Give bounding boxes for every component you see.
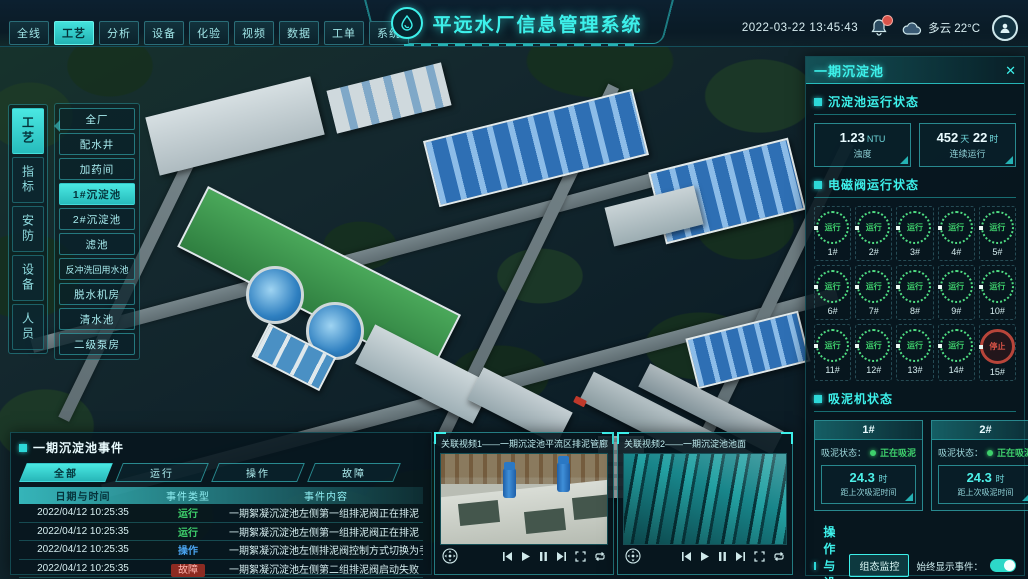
close-icon[interactable]: ✕ [1005,64,1016,77]
weather-text: 多云 22°C [928,20,980,36]
table-row[interactable]: 2022/04/12 10:25:35 运行 一期絮凝沉淀池左侧第一组排泥阀正在… [19,504,423,523]
valve-gauge[interactable]: 运行12# [855,324,892,381]
video-title: 关联视频1——一期沉淀池平流区排泥管廊 [435,433,613,453]
event-tab-running[interactable]: 运行 [115,463,209,482]
status-dot [987,450,993,456]
header-bar: 全线 工艺 分析 设备 化验 视频 数据 工单 系统 平远水厂信息管理系统 20… [0,0,1028,47]
header-right: 2022-03-22 13:45:43 多云 22°C [742,15,1018,41]
skip-back-icon[interactable] [502,551,513,562]
section-header-running: 沉淀池运行状态 [814,93,1016,115]
valve-gauge[interactable]: 运行10# [979,265,1016,320]
nav-tab-analysis[interactable]: 分析 [99,21,139,45]
menu-item-clear-water-pool[interactable]: 清水池 [59,308,135,330]
events-panel: 一期沉淀池事件 全部 运行 操作 故障 日期与时间 事件类型 事件内容 2022… [10,432,432,575]
video-title: 关联视频2——一期沉淀池池面 [618,433,792,453]
weather: 多云 22°C [902,20,980,36]
left-category-tabs: 工艺 指标 安防 设备 人员 [8,104,48,354]
video-controls [435,545,613,567]
valve-gauge[interactable]: 停止15# [979,324,1016,381]
pause-icon[interactable] [718,551,727,562]
nav-tab-video[interactable]: 视频 [234,21,274,45]
table-row[interactable]: 2022/04/12 10:25:35 故障 一期絮凝沉淀池左侧第二组排泥阀启动… [19,560,423,579]
turbidity-stat: 1.23NTU 浊度 [814,123,911,167]
alert-badge [882,15,893,26]
panel-title: 一期沉淀池 [814,61,884,80]
running-stats: 1.23NTU 浊度 452天 22时 连续运行 [814,123,1016,167]
video-still [624,454,786,544]
status-dot [870,450,876,456]
scraper-card-2: 2# 吸泥状态：正在吸泥 24.3 时 距上次吸泥时间 [931,420,1028,511]
title-underline [404,44,634,46]
linked-video-panel-1: 关联视频1——一期沉淀池平流区排泥管廊 [434,432,614,575]
panel-titlebar: 一期沉淀池 ✕ [806,57,1024,84]
video-feed[interactable] [440,453,608,545]
page-title: 平远水厂信息管理系统 [432,10,642,37]
operations-settings-row: 操作与设置 组态监控 始终显示事件： [814,523,1016,579]
nav-tab-workorder[interactable]: 工单 [324,21,364,45]
building [145,76,324,175]
section-header-valves: 电磁阀运行状态 [814,176,1016,198]
menu-item-sedimentation-1[interactable]: 1#沉淀池 [59,183,135,205]
tab-process[interactable]: 工艺 [12,108,44,154]
nav-tab-lab[interactable]: 化验 [189,21,229,45]
valve-gauge[interactable]: 运行5# [979,206,1016,261]
event-tab-fault[interactable]: 故障 [307,463,401,482]
circular-pool [246,266,304,324]
play-icon[interactable] [521,551,531,562]
nav-tab-equipment[interactable]: 设备 [144,21,184,45]
valve-gauge[interactable]: 运行11# [814,324,851,381]
linked-video-panel-2: 关联视频2——一期沉淀池池面 [617,432,793,575]
fullscreen-icon[interactable] [754,551,765,562]
cloud-icon [902,21,922,35]
skip-back-icon[interactable] [681,551,692,562]
event-filter-tabs: 全部 运行 操作 故障 [23,463,421,482]
menu-item-backwash-pool[interactable]: 反冲洗回用水池 [59,258,135,280]
user-avatar[interactable] [992,15,1018,41]
building [326,62,451,133]
menu-item-sedimentation-2[interactable]: 2#沉淀池 [59,208,135,230]
play-icon[interactable] [700,551,710,562]
scraper-card-1: 1# 吸泥状态：正在吸泥 24.3 时 距上次吸泥时间 [814,420,923,511]
table-row[interactable]: 2022/04/12 10:25:35 运行 一期絮凝沉淀池左侧第一组排泥阀正在… [19,523,423,542]
skip-forward-icon[interactable] [735,551,746,562]
video-still [441,454,607,544]
valve-gauge[interactable]: 运行4# [938,206,975,261]
tab-personnel[interactable]: 人员 [12,304,44,350]
uptime-stat: 452天 22时 连续运行 [919,123,1016,167]
menu-item-secondary-pump[interactable]: 二级泵房 [59,333,135,355]
section-bullet [814,562,816,570]
scraper-timer: 24.3 时 距上次吸泥时间 [938,465,1028,504]
scada-monitor-button[interactable]: 组态监控 [849,554,909,577]
menu-item-distribution-well[interactable]: 配水井 [59,133,135,155]
valve-gauge[interactable]: 运行6# [814,265,851,320]
nav-tab-data[interactable]: 数据 [279,21,319,45]
always-show-events-toggle[interactable] [990,559,1016,572]
app-title-block: 平远水厂信息管理系统 [384,2,650,44]
blue-pump [557,462,570,492]
valve-gauge[interactable]: 运行14# [938,324,975,381]
ptz-pad-icon[interactable] [625,548,641,564]
nav-tab-process[interactable]: 工艺 [54,21,94,45]
loop-icon[interactable] [773,551,785,562]
scraper-timer: 24.3 时 距上次吸泥时间 [821,465,916,504]
valve-gauge[interactable]: 运行9# [938,265,975,320]
loop-icon[interactable] [594,551,606,562]
section-bullet [19,444,27,452]
valve-gauge[interactable]: 运行7# [855,265,892,320]
events-table-header: 日期与时间 事件类型 事件内容 [19,487,423,504]
nav-tab-overview[interactable]: 全线 [9,21,49,45]
menu-item-whole-plant[interactable]: 全厂 [59,108,135,130]
top-nav: 全线 工艺 分析 设备 化验 视频 数据 工单 系统 [9,21,409,45]
sedimentation-detail-panel: 一期沉淀池 ✕ 沉淀池运行状态 1.23NTU 浊度 452天 22时 连续运行… [805,56,1025,576]
blue-pump [503,468,516,498]
valve-status-grid: 运行1# 运行2# 运行3# 运行4# 运行5# 运行6# 运行7# 运行8# … [814,206,1016,381]
tab-security[interactable]: 安防 [12,206,44,252]
area-submenu: 全厂 配水井 加药间 1#沉淀池 2#沉淀池 滤池 反冲洗回用水池 脱水机房 清… [54,103,140,360]
video-controls [618,545,792,567]
datetime: 2022-03-22 13:45:43 [742,22,858,34]
valve-gauge[interactable]: 运行8# [896,265,933,320]
valve-gauge[interactable]: 运行13# [896,324,933,381]
skip-forward-icon[interactable] [556,551,567,562]
menu-item-filter[interactable]: 滤池 [59,233,135,255]
water-plant-dashboard: 全线 工艺 分析 设备 化验 视频 数据 工单 系统 平远水厂信息管理系统 20… [0,0,1028,579]
section-header-scrapers: 吸泥机状态 [814,390,1016,412]
water-drop-logo-icon [391,7,423,39]
event-tab-operation[interactable]: 操作 [211,463,305,482]
section-bullet [814,98,822,106]
menu-item-dewatering-room[interactable]: 脱水机房 [59,283,135,305]
fullscreen-icon[interactable] [575,551,586,562]
valve-gauge[interactable]: 运行1# [814,206,851,261]
tab-indicators[interactable]: 指标 [12,157,44,203]
events-table: 日期与时间 事件类型 事件内容 2022/04/12 10:25:35 运行 一… [19,487,423,578]
valve-gauge[interactable]: 运行2# [855,206,892,261]
pause-icon[interactable] [539,551,548,562]
menu-item-dosing-room[interactable]: 加药间 [59,158,135,180]
section-bullet [814,395,822,403]
event-tab-all[interactable]: 全部 [19,463,113,482]
tab-devices[interactable]: 设备 [12,255,44,301]
section-bullet [814,181,822,189]
events-header: 一期沉淀池事件 [11,433,431,460]
mud-scraper-cards: 1# 吸泥状态：正在吸泥 24.3 时 距上次吸泥时间 2# 吸泥状态：正在吸泥… [814,420,1016,511]
table-row[interactable]: 2022/04/12 10:25:35 操作 一期絮凝沉淀池左侧排泥阀控制方式切… [19,541,423,560]
valve-gauge[interactable]: 运行3# [896,206,933,261]
video-feed[interactable] [623,453,787,545]
ptz-pad-icon[interactable] [442,548,458,564]
notification-bell-icon[interactable] [870,18,890,38]
